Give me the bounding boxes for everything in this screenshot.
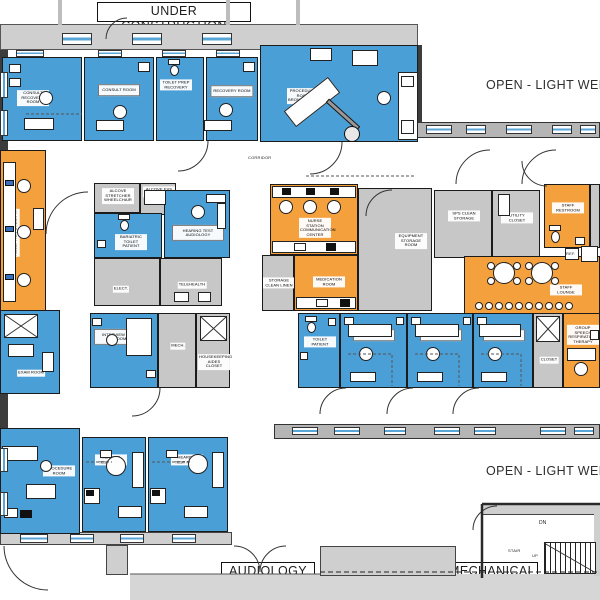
chair — [513, 262, 521, 270]
window — [132, 33, 162, 45]
window — [0, 492, 8, 516]
room-exam-left-label: EXAM ROOM — [17, 370, 45, 377]
window — [172, 534, 196, 543]
sink — [97, 240, 106, 248]
bench — [481, 372, 507, 382]
floor-plan-page: { "labels": { "under_construction": "UND… — [0, 0, 600, 600]
chair — [303, 200, 317, 214]
casework — [132, 452, 144, 488]
zone-topwall-stub-2 — [226, 0, 230, 25]
lounge-table — [493, 262, 515, 284]
alcove-stretcher-wheelchair: ALCOVE STRETCHER WHEELCHAIR — [94, 183, 140, 213]
window — [62, 33, 92, 45]
zone-stair-top-band — [482, 503, 600, 515]
lounge-table — [531, 262, 553, 284]
window — [580, 125, 596, 134]
sink — [300, 352, 308, 360]
cabinet — [166, 450, 178, 458]
side-table — [33, 208, 44, 230]
chair — [475, 302, 483, 310]
counter — [581, 246, 598, 262]
chair — [525, 302, 533, 310]
room-bariatric-toilet-label: BARIATRIC TOILET PATIENT — [115, 234, 147, 250]
alcove-storage-clean-linen-label: STORAGE CLEAN LINEN — [263, 277, 295, 288]
open-light-well-bottom-label: OPEN - LIGHT WELL — [486, 464, 600, 478]
window — [384, 427, 406, 435]
room-procedure-2: PROCEDURE ROOM — [0, 428, 80, 534]
window — [552, 125, 572, 134]
monitor — [306, 188, 315, 195]
chair — [495, 302, 503, 310]
stool — [40, 460, 52, 472]
chair — [525, 277, 533, 285]
window — [426, 125, 452, 134]
room-sps-clean-storage: SPS CLEAN STORAGE — [434, 190, 492, 258]
room-staff-lounge-label: STAFF LOUNGE — [550, 284, 582, 295]
toilet-bowl — [120, 220, 129, 231]
door-arc — [178, 141, 208, 171]
window — [434, 427, 460, 435]
door-arc — [453, 388, 479, 414]
cabinet — [401, 76, 414, 87]
cabinet — [344, 317, 354, 325]
table — [26, 484, 56, 499]
stool — [113, 105, 127, 119]
monitor — [20, 510, 32, 518]
window — [474, 427, 496, 435]
room-telehealth-label: TELEHEALTH — [178, 282, 207, 289]
room-medication-label: MEDICATION ROOM — [313, 276, 345, 287]
cabinet — [310, 48, 332, 61]
cabinet — [590, 330, 599, 340]
room-staff-restroom-label: STAFF RESTROOM — [552, 202, 584, 213]
cabinet — [9, 78, 21, 87]
monitor — [282, 188, 291, 195]
chair — [565, 302, 573, 310]
monitor — [152, 490, 160, 496]
room-elect-label: ELECT. — [113, 286, 129, 293]
window — [216, 50, 240, 57]
equipment — [174, 292, 189, 302]
room-elect: ELECT. — [94, 258, 160, 306]
room-toilet-patient-label: TOILET PATIENT — [304, 336, 336, 347]
label-stair: STAIR — [508, 548, 520, 553]
door-arc — [387, 388, 413, 414]
stool — [488, 347, 502, 361]
window — [574, 427, 594, 435]
chair — [574, 362, 588, 376]
cabinet — [146, 370, 156, 378]
bench — [417, 372, 443, 382]
monitor — [5, 274, 14, 280]
cabinet — [477, 317, 487, 325]
door-arc — [522, 161, 547, 186]
window — [292, 427, 318, 435]
room-equipment-storage: EQUIPMENT STORAGE ROOM — [358, 188, 432, 311]
zone-bottomleft-wall-stub — [106, 545, 128, 575]
window — [162, 50, 186, 57]
label-corridor: CORRIDOR — [248, 155, 271, 160]
nurse-counter — [272, 241, 356, 253]
room-consult-1-label: CONSULT ROOM — [98, 84, 140, 96]
chair — [487, 277, 495, 285]
cabinet — [9, 64, 21, 73]
door-arc — [522, 150, 556, 184]
room-nurse-station-label: NURSE STATION COMMUNICATION CENTER — [299, 218, 331, 238]
reception-chair — [17, 273, 31, 287]
desk — [206, 194, 226, 203]
door-arc — [132, 388, 160, 416]
alcove-stretcher-wheelchair-label: ALCOVE STRETCHER WHEELCHAIR — [102, 188, 134, 204]
exam-table — [126, 318, 152, 356]
consult-table — [348, 324, 392, 337]
shaft-box — [200, 316, 227, 341]
window — [506, 125, 532, 134]
stool — [219, 103, 233, 117]
shaft-right-edge — [590, 184, 600, 248]
door-arc — [46, 192, 88, 234]
shelf — [498, 194, 510, 216]
booth-table — [188, 454, 208, 474]
toilet-bowl — [170, 65, 179, 76]
chair — [535, 302, 543, 310]
booth-table — [106, 456, 126, 476]
cabinet — [411, 317, 421, 325]
bench — [184, 506, 208, 518]
desk — [567, 348, 596, 361]
zone-bottom-strip — [130, 574, 600, 600]
room-toilet-prep-recovery-label: TOILET PREP RECOVERY — [160, 79, 192, 90]
room-mech-label: MECH. — [170, 343, 185, 350]
bench — [118, 506, 142, 518]
toilet-bowl — [551, 231, 560, 243]
window — [70, 534, 94, 543]
patient-bed — [204, 120, 232, 131]
window — [334, 427, 360, 435]
chair — [515, 302, 523, 310]
zone-bottom-gray-block — [320, 546, 456, 576]
floor-plan: UNDER CONSTRUCTION OPEN - LIGHT WELL OPE… — [0, 0, 600, 600]
window — [466, 125, 486, 134]
room-equipment-storage-label: EQUIPMENT STORAGE ROOM — [395, 233, 427, 249]
cabinet — [100, 450, 112, 458]
patient-bed — [96, 120, 124, 131]
sink — [575, 237, 585, 245]
toilet-bowl — [307, 322, 316, 333]
chair — [551, 262, 559, 270]
evs-cart — [144, 190, 166, 205]
window — [0, 72, 8, 98]
alcove-storage-clean-linen: STORAGE CLEAN LINEN — [262, 255, 294, 311]
stool — [426, 347, 440, 361]
chair — [485, 302, 493, 310]
label-up: UP — [532, 553, 538, 558]
door-arc — [320, 388, 346, 414]
monitor — [326, 243, 336, 251]
monitor — [5, 226, 14, 232]
monitor — [5, 180, 14, 186]
bench — [350, 372, 376, 382]
room-telehealth: TELEHEALTH — [160, 258, 222, 306]
sink — [316, 299, 328, 307]
reception-chair — [17, 179, 31, 193]
chair — [555, 302, 563, 310]
equipment — [340, 299, 350, 307]
consult-table — [415, 324, 459, 337]
equipment — [198, 292, 211, 302]
stool — [106, 334, 118, 346]
cabinet — [92, 318, 102, 326]
equipment-base — [344, 126, 360, 142]
patient-bed — [24, 118, 54, 130]
window — [16, 50, 44, 57]
table — [352, 50, 378, 66]
window — [540, 427, 566, 435]
reception-chair — [17, 225, 31, 239]
chair — [487, 262, 495, 270]
casework — [212, 452, 224, 488]
chair — [525, 262, 533, 270]
room-toilet-prep-recovery: TOILET PREP RECOVERY — [156, 57, 204, 141]
label-ref: REF. — [566, 251, 575, 256]
room-sps-clean-storage-label: SPS CLEAN STORAGE — [448, 210, 480, 221]
window — [0, 448, 8, 472]
door-arc — [4, 546, 48, 590]
chair — [279, 200, 293, 214]
chair — [327, 200, 341, 214]
chair — [505, 302, 513, 310]
cabinet — [463, 317, 471, 325]
zone-topwall-stub-1 — [58, 0, 62, 25]
zone-topwall-stub-3 — [296, 0, 300, 25]
window — [0, 110, 8, 136]
sink — [328, 318, 336, 326]
patient-bed — [8, 344, 34, 357]
room-housekeeping-closet-label: HOUSEKEEPING AIDES CLOSET — [198, 354, 230, 370]
stool — [39, 91, 53, 105]
stairs — [544, 542, 596, 574]
cabinet — [42, 352, 54, 372]
chair — [551, 277, 559, 285]
shaft-box — [4, 314, 38, 338]
room-recovery-label: RECOVERY ROOM — [210, 85, 253, 97]
room-closet-label: CLOSET — [540, 357, 559, 364]
consult-table — [479, 324, 521, 337]
window — [120, 534, 144, 543]
chair — [513, 277, 521, 285]
shaft-box — [536, 316, 560, 342]
window — [202, 33, 232, 45]
window — [98, 50, 122, 57]
stool — [377, 91, 391, 105]
room-mech: MECH. — [158, 313, 196, 388]
desk — [217, 203, 226, 229]
cabinet — [243, 62, 255, 72]
stool — [359, 347, 373, 361]
monitor — [86, 490, 94, 496]
monitor — [330, 188, 339, 195]
door-arc — [310, 142, 342, 174]
chair — [545, 302, 553, 310]
window — [20, 534, 48, 543]
label-dn: DN — [539, 520, 546, 526]
stool — [191, 205, 205, 219]
open-light-well-top-label: OPEN - LIGHT WELL — [486, 78, 600, 92]
sink — [294, 243, 306, 251]
cabinet — [401, 120, 414, 134]
door-arc — [456, 150, 490, 184]
cabinet — [138, 62, 150, 72]
cabinet — [396, 317, 404, 325]
